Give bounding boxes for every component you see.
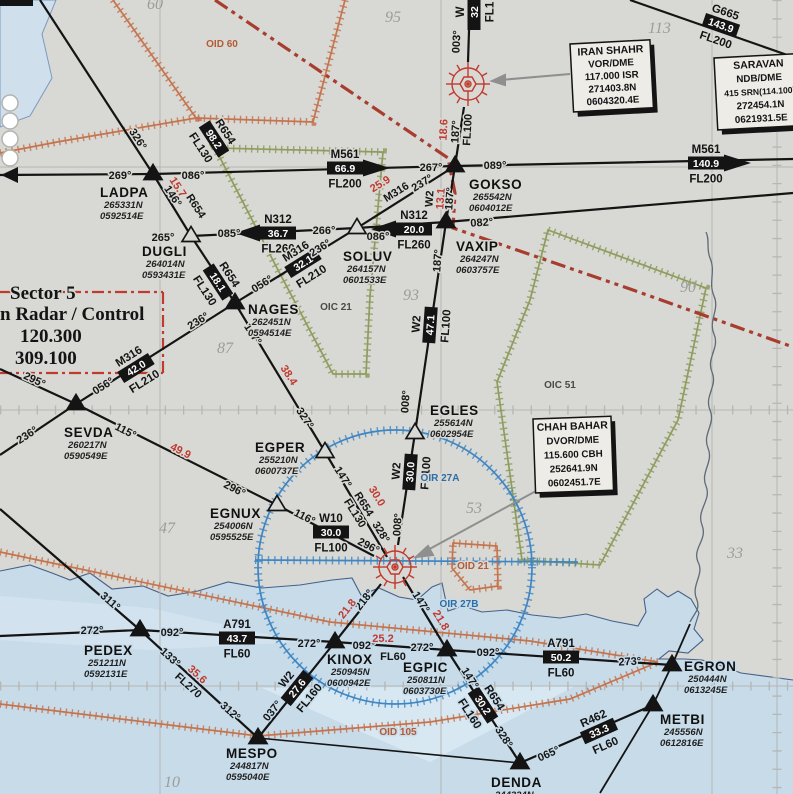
airway-name: W bbox=[455, 6, 467, 17]
airway-name: M561 bbox=[692, 144, 721, 156]
navaid-info-line: 252641.9N bbox=[550, 463, 598, 476]
airway-label: FL60 bbox=[380, 651, 406, 663]
bearing-label: 086° bbox=[182, 170, 205, 182]
airway-distance: 30.0 bbox=[321, 527, 342, 539]
waypoint-latitude: 254006N bbox=[213, 521, 254, 532]
bearing-label: 086° bbox=[367, 231, 390, 243]
waypoint-name: LADPA bbox=[100, 185, 149, 200]
waypoint-longitude: 0601533E bbox=[343, 275, 387, 286]
waypoint-latitude: 250811N bbox=[406, 675, 446, 686]
grid-number: 113 bbox=[648, 20, 671, 37]
airway-distance: 140.9 bbox=[693, 158, 719, 170]
navaid-info-line: DVOR/DME bbox=[546, 435, 600, 448]
grid-number: 10 bbox=[164, 774, 180, 791]
bearing-label: 273° bbox=[618, 655, 641, 668]
airway-level: FL260 bbox=[397, 240, 430, 252]
grid-number: 95 bbox=[385, 9, 401, 26]
waypoint-latitude: 255614N bbox=[433, 418, 474, 429]
navaid-info-line: CHAH BAHAR bbox=[537, 419, 609, 433]
waypoint-latitude: 260217N bbox=[67, 440, 108, 451]
airway-distance: 50.2 bbox=[551, 652, 572, 664]
bearing-label: 003° bbox=[450, 30, 463, 53]
waypoint-name: EGRON bbox=[684, 659, 737, 674]
waypoint-longitude: 0593431E bbox=[142, 270, 186, 281]
waypoint-name: DUGLI bbox=[142, 244, 187, 259]
area-label: OID 60 bbox=[206, 39, 238, 50]
waypoint-name: DENDA bbox=[491, 775, 542, 790]
grid-number: 53 bbox=[466, 500, 482, 517]
waypoint-name: GOKSO bbox=[469, 177, 522, 192]
airway-distance: 43.7 bbox=[227, 633, 248, 645]
navaid-box-iran-shahr: IRAN SHAHRVOR/DME117.000 ISR271403.8N060… bbox=[570, 40, 658, 117]
airway-level: FL200 bbox=[328, 179, 361, 191]
grid-number: 47 bbox=[159, 520, 176, 537]
bearing-label: 266° bbox=[313, 225, 336, 237]
grid-number: 87 bbox=[217, 340, 234, 357]
waypoint-longitude: 0595040E bbox=[226, 772, 270, 783]
sector-frequency-1: 120.300 bbox=[20, 326, 82, 347]
bearing-label: 092° bbox=[477, 647, 500, 659]
sector-title: Sector 5 bbox=[10, 283, 76, 304]
waypoint-name: SOLUV bbox=[343, 249, 393, 264]
navaid-box-saravan: SARAVANNDB/DME415 SRN(114.100)272454.1N0… bbox=[714, 53, 793, 135]
bearing-label: 272° bbox=[81, 625, 104, 637]
bearing-label: 269° bbox=[109, 170, 132, 182]
navaid-info-line: 0602451.7E bbox=[548, 477, 602, 490]
distance-label: 25.2 bbox=[372, 633, 393, 645]
area-label: OID 21 bbox=[457, 561, 489, 572]
airway-name: W2 bbox=[410, 315, 423, 333]
waypoint-longitude: 0603730E bbox=[403, 686, 447, 697]
airway-distance: 20.0 bbox=[404, 224, 425, 236]
waypoint-name: NAGES bbox=[248, 302, 299, 317]
waypoint-latitude: 250945N bbox=[330, 667, 371, 678]
sector-frequency-2: 309.100 bbox=[15, 348, 77, 369]
bearing-label: 092° bbox=[161, 627, 184, 639]
waypoint-name: EGLES bbox=[430, 403, 479, 418]
area-label: OIC 51 bbox=[544, 380, 576, 391]
corner-black-bar bbox=[0, 0, 33, 6]
airway-level: FL60 bbox=[548, 668, 575, 680]
bearing-label: 082° bbox=[470, 216, 494, 230]
waypoint-latitude: 264247N bbox=[459, 254, 500, 265]
sector-subtitle: n Radar / Control bbox=[0, 304, 144, 325]
waypoint-longitude: 0600737E bbox=[255, 466, 299, 477]
airway-level: FL60 bbox=[224, 649, 251, 661]
airway-distance: 47.1 bbox=[424, 314, 437, 335]
airway-box-a791-50.2: A79150.2FL60 bbox=[543, 638, 579, 680]
waypoint-name: VAXIP bbox=[456, 239, 499, 254]
area-label: OIC 21 bbox=[320, 302, 352, 313]
bearing-label: 008° bbox=[391, 513, 405, 537]
airway-label: FL100 bbox=[461, 114, 475, 146]
waypoint-longitude: 0600942E bbox=[327, 678, 371, 689]
airway-name: W10 bbox=[319, 513, 343, 525]
edge-marker-dot[interactable] bbox=[2, 131, 18, 147]
navaid-box-chah-bahar: CHAH BAHARDVOR/DME115.600 CBH252641.9N06… bbox=[533, 416, 618, 498]
bearing-label: 008° bbox=[399, 390, 413, 414]
airway-name: A791 bbox=[547, 638, 575, 650]
waypoint-name: SEVDA bbox=[64, 425, 114, 440]
airway-name: N312 bbox=[264, 214, 292, 226]
airway-distance: 66.9 bbox=[335, 163, 356, 175]
area-label: OIR 27A bbox=[421, 473, 460, 484]
distance-label: 18.6 bbox=[437, 119, 450, 141]
chart-canvas: 609511390938753473310 Sector 5 n Radar /… bbox=[0, 0, 793, 794]
grid-number: 33 bbox=[726, 545, 743, 562]
waypoint-name: EGPIC bbox=[403, 660, 448, 675]
navaid-info-line: 115.600 CBH bbox=[544, 449, 603, 462]
airway-name: W2 bbox=[390, 462, 403, 480]
airway-level: FL200 bbox=[689, 174, 722, 186]
waypoint-name: EGPER bbox=[255, 440, 305, 455]
waypoint-longitude: 0602954E bbox=[430, 429, 474, 440]
airway-name: N312 bbox=[400, 210, 428, 222]
area-label: OID 105 bbox=[379, 727, 417, 738]
waypoint-name: MESPO bbox=[226, 746, 278, 761]
waypoint-latitude: 244817N bbox=[229, 761, 270, 772]
waypoint-longitude: 0613245E bbox=[684, 685, 728, 696]
airway-distance: 36.7 bbox=[268, 228, 289, 240]
waypoint-name: PEDEX bbox=[84, 643, 133, 658]
grid-number: 60 bbox=[147, 0, 163, 13]
bearing-label: 272° bbox=[411, 642, 434, 654]
bearing-label: 265° bbox=[152, 232, 175, 244]
waypoint-latitude: 264157N bbox=[346, 264, 387, 275]
airway-label: W2 bbox=[423, 190, 436, 207]
waypoint-latitude: 250444N bbox=[687, 674, 728, 685]
airway-distance: 32 bbox=[469, 6, 481, 18]
waypoint-longitude: 0590549E bbox=[64, 451, 108, 462]
waypoint-latitude: 264014N bbox=[145, 259, 186, 270]
area-label: OIR 27B bbox=[440, 599, 479, 610]
waypoint-longitude: 0594514E bbox=[248, 328, 292, 339]
waypoint-name: METBI bbox=[660, 712, 705, 727]
grid-number: 93 bbox=[403, 287, 419, 304]
airway-level: FL100 bbox=[314, 543, 347, 555]
waypoint-name: EGNUX bbox=[210, 506, 261, 521]
edge-marker-dot[interactable] bbox=[2, 95, 18, 111]
grid-number: 90 bbox=[680, 279, 696, 296]
waypoint-name: KINOX bbox=[327, 652, 373, 667]
bearing-label: 085° bbox=[218, 228, 241, 240]
waypoint-longitude: 0603757E bbox=[456, 265, 500, 276]
bearing-label: 272° bbox=[298, 638, 321, 650]
bearing-label: 187° bbox=[431, 249, 445, 273]
waypoint-longitude: 0592514E bbox=[100, 211, 144, 222]
waypoint-latitude: 245556N bbox=[663, 727, 704, 738]
waypoint-latitude: 262451N bbox=[251, 317, 292, 328]
airway-box-a791-43.7: A79143.7FL60 bbox=[219, 619, 255, 661]
airway-level: FL1 bbox=[485, 1, 497, 22]
bearing-label: 089° bbox=[484, 160, 507, 172]
waypoint-longitude: 0595525E bbox=[210, 532, 254, 543]
bearing-label: 267° bbox=[420, 162, 443, 174]
edge-marker-dot[interactable] bbox=[2, 150, 18, 166]
airway-distance: 30.0 bbox=[404, 461, 417, 482]
waypoint-latitude: 251211N bbox=[87, 658, 127, 669]
edge-marker-dot[interactable] bbox=[2, 113, 18, 129]
enroute-chart: 609511390938753473310 Sector 5 n Radar /… bbox=[0, 0, 793, 794]
waypoint-latitude: 265331N bbox=[103, 200, 144, 211]
airway-name: A791 bbox=[223, 619, 251, 631]
waypoint-longitude: 0612816E bbox=[660, 738, 704, 749]
airway-level: FL100 bbox=[439, 309, 453, 343]
waypoint-latitude: 244324N bbox=[494, 790, 535, 794]
waypoint-latitude: 265542N bbox=[472, 192, 513, 203]
airway-name: M561 bbox=[331, 149, 360, 161]
waypoint-longitude: 0592131E bbox=[84, 669, 128, 680]
waypoint-longitude: 0604012E bbox=[469, 203, 513, 214]
waypoint-latitude: 255210N bbox=[258, 455, 299, 466]
